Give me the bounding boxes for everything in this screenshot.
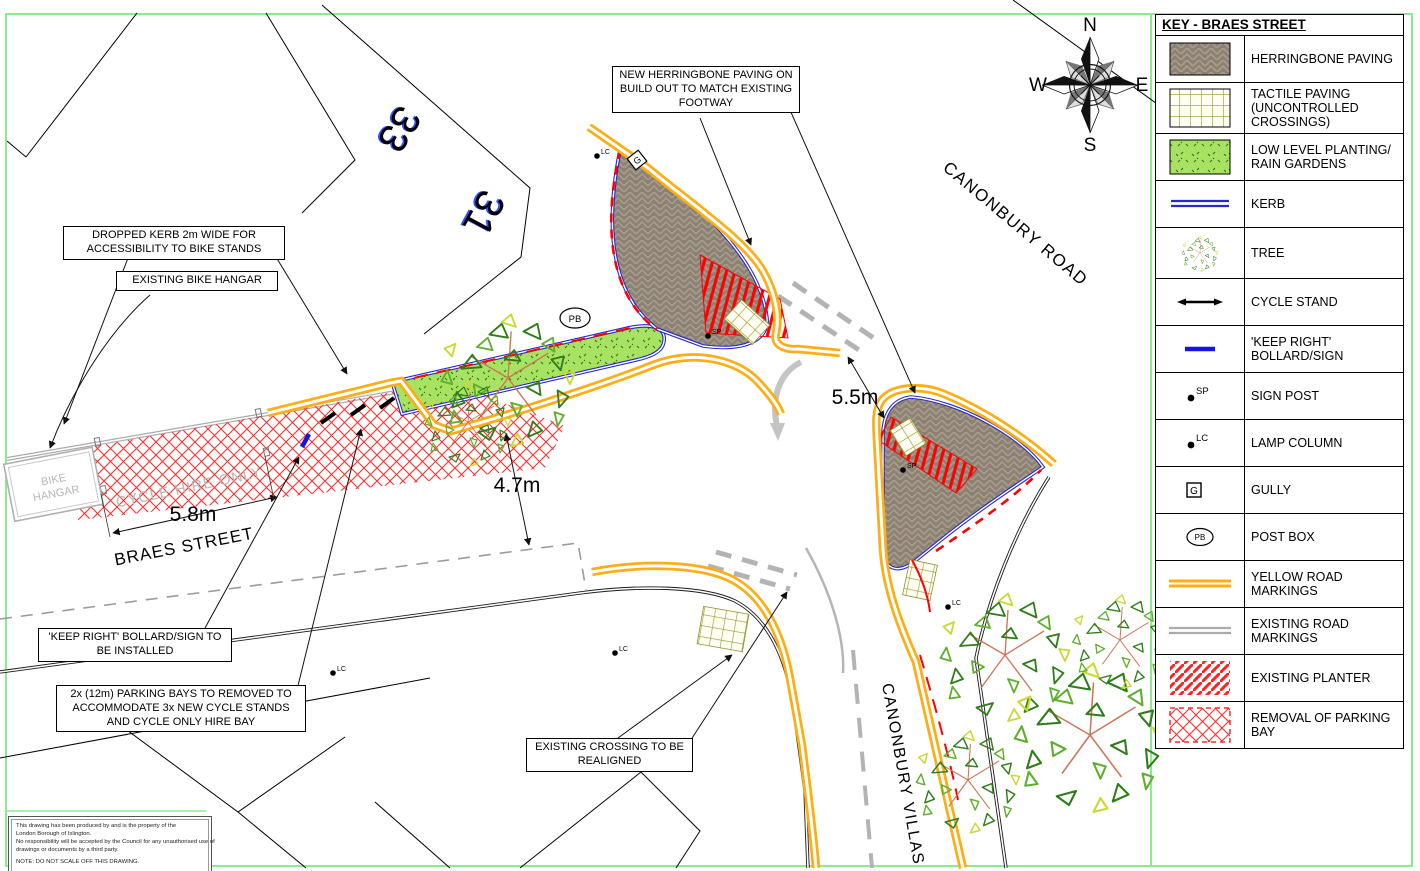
note-line: London Borough of Islington. [16, 831, 204, 839]
legend-label: 'KEEP RIGHT' BOLLARD/SIGN [1245, 326, 1403, 372]
compass-w: W [1029, 75, 1047, 96]
legend-row-kerb: KERB [1156, 181, 1403, 228]
yellow-markings-swatch [1156, 561, 1245, 607]
note-line: drawings or documents by a third party. [16, 847, 204, 855]
legend-label: EXISTING ROAD MARKINGS [1245, 608, 1403, 654]
legend-row-keep-right: 'KEEP RIGHT' BOLLARD/SIGN [1156, 326, 1403, 373]
cycle-stand-icon [1156, 279, 1245, 325]
svg-text:PB: PB [1195, 533, 1206, 542]
post-box-icon: PB [1156, 514, 1245, 560]
legend-label: GULLY [1245, 467, 1403, 513]
legend-row-tactile: TACTILE PAVING (UNCONTROLLED CROSSINGS) [1156, 83, 1403, 134]
existing-markings-swatch [1156, 608, 1245, 654]
kerb-swatch [1156, 181, 1245, 227]
herringbone-swatch [1156, 36, 1245, 82]
legend-row-existing-planter: EXISTING PLANTER [1156, 655, 1403, 702]
svg-text:SP: SP [1196, 386, 1209, 397]
callout-dropped-kerb: DROPPED KERB 2m WIDE FOR ACCESSIBILITY T… [63, 226, 285, 260]
dim-crossing-width: 4.7m [494, 474, 541, 497]
legend-row-gully: G GULLY [1156, 467, 1403, 514]
legend-row-existing-markings: EXISTING ROAD MARKINGS [1156, 608, 1403, 655]
svg-text:LC: LC [601, 149, 610, 156]
canonbury-road-label: CANONBURY ROAD [939, 158, 1091, 290]
svg-text:LC: LC [337, 666, 346, 673]
copyright-note: This drawing has been produced by and is… [8, 816, 212, 871]
svg-text:31: 31 [454, 183, 514, 243]
svg-text:LC: LC [619, 646, 628, 653]
post-box-marker: PB [560, 308, 590, 328]
svg-text:SP: SP [907, 463, 917, 470]
legend-label: LAMP COLUMN [1245, 420, 1403, 466]
existing-planter-swatch [1156, 655, 1245, 701]
building-number-33: 33 33 [367, 98, 430, 159]
gully-icon: G [1156, 467, 1245, 513]
svg-text:LC: LC [952, 600, 961, 607]
legend-label: YELLOW ROAD MARKINGS [1245, 561, 1403, 607]
legend-label: EXISTING PLANTER [1245, 655, 1403, 701]
legend-label: TREE [1245, 228, 1403, 278]
keep-right-bollard-icon [1156, 326, 1245, 372]
dim-bay-length: 5.8m [170, 503, 217, 526]
legend-label: TACTILE PAVING (UNCONTROLLED CROSSINGS) [1245, 83, 1403, 133]
callout-new-herringbone: NEW HERRINGBONE PAVING ON BUILD OUT TO M… [612, 66, 800, 113]
tactile-swatch [1156, 83, 1245, 133]
legend-label: HERRINGBONE PAVING [1245, 36, 1403, 82]
legend-row-yellow-markings: YELLOW ROAD MARKINGS [1156, 561, 1403, 608]
tree-swatch [1156, 228, 1245, 278]
svg-text:33: 33 [369, 98, 430, 159]
legend-label: POST BOX [1245, 514, 1403, 560]
svg-text:G: G [1190, 486, 1198, 497]
callout-parking-bays: 2x (12m) PARKING BAYS TO REMOVED TO ACCO… [56, 685, 306, 732]
legend-row-herringbone: HERRINGBONE PAVING [1156, 36, 1403, 83]
planting-swatch [1156, 134, 1245, 180]
legend-title: KEY - BRAES STREET [1156, 15, 1403, 36]
svg-text:PB: PB [569, 314, 582, 325]
canonbury-villas-label: CANONBURY VILLAS [878, 682, 927, 867]
legend-label: KERB [1245, 181, 1403, 227]
lamp-column-icon: LC [1156, 420, 1245, 466]
legend-label: LOW LEVEL PLANTING/ RAIN GARDENS [1245, 134, 1403, 180]
svg-text:LC: LC [1196, 433, 1208, 444]
sign-post-icon: SP [1156, 373, 1245, 419]
compass-e: E [1136, 75, 1149, 96]
legend-row-planting: LOW LEVEL PLANTING/ RAIN GARDENS [1156, 134, 1403, 181]
note-line: No responsibility will be accepted by th… [16, 839, 204, 847]
compass-s: S [1084, 135, 1097, 156]
note-do-not-scale: NOTE: DO NOT SCALE OFF THIS DRAWING. [16, 859, 204, 867]
dim-junction-mouth: 5.5m [832, 386, 879, 409]
legend-row-tree: TREE [1156, 228, 1403, 279]
braes-street-label: BRAES STREET [113, 524, 255, 570]
legend-label: SIGN POST [1245, 373, 1403, 419]
building-number-31: 31 31 [452, 183, 514, 243]
drawing-page: BIKE HANGAR CYCLE HIRE ONLY LC LC LC LC … [0, 0, 1420, 871]
svg-text:SP: SP [712, 329, 722, 336]
legend-row-lamp-column: LC LAMP COLUMN [1156, 420, 1403, 467]
legend-row-post-box: PB POST BOX [1156, 514, 1403, 561]
callout-existing-crossing: EXISTING CROSSING TO BE REALIGNED [526, 738, 693, 772]
compass-n: N [1083, 15, 1097, 36]
removal-parking-swatch [1156, 702, 1245, 748]
note-line: This drawing has been produced by and is… [16, 823, 204, 831]
legend-row-cycle-stand: CYCLE STAND [1156, 279, 1403, 326]
callout-keep-right-bollard: 'KEEP RIGHT' BOLLARD/SIGN TO BE INSTALLE… [38, 628, 232, 662]
existing-planters [700, 255, 977, 493]
legend-label: REMOVAL OF PARKING BAY [1245, 702, 1403, 748]
legend-row-sign-post: SP SIGN POST [1156, 373, 1403, 420]
legend-panel: KEY - BRAES STREET HERRINGBONE PAVING TA… [1155, 14, 1404, 749]
compass-rose: N E S W [1029, 15, 1148, 156]
legend-row-removal-parking: REMOVAL OF PARKING BAY [1156, 702, 1403, 748]
callout-existing-bike-hangar: EXISTING BIKE HANGAR [116, 271, 278, 291]
legend-label: CYCLE STAND [1245, 279, 1403, 325]
